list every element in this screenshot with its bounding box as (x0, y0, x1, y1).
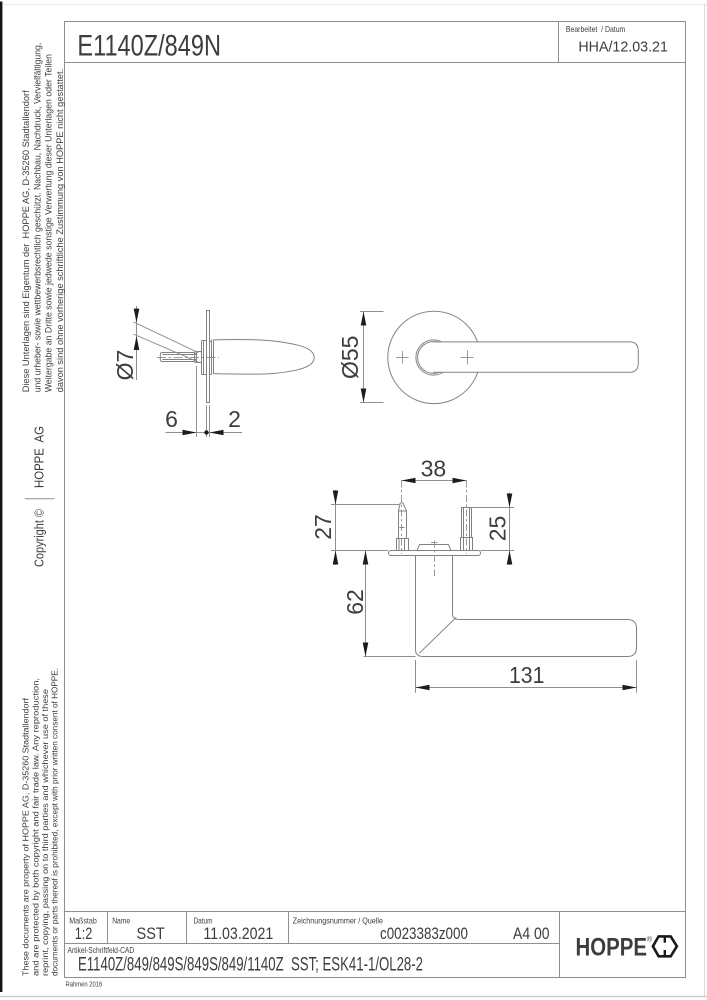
svg-text:Artikel-Schriftfeld-CAD: Artikel-Schriftfeld-CAD (68, 945, 135, 955)
svg-text:2: 2 (228, 406, 241, 432)
svg-text:HHA/12.03.21: HHA/12.03.21 (578, 39, 668, 56)
svg-text:und urheber- sowie wettbewerbs: und urheber- sowie wettbewerbsrechtlich … (33, 43, 43, 393)
svg-text:38: 38 (421, 456, 447, 482)
svg-text:HOPPE AG: HOPPE AG (32, 426, 47, 488)
svg-text:Bearbeitet / Datum: Bearbeitet / Datum (566, 24, 625, 34)
svg-text:Diese Unterlagen sind Eigentum: Diese Unterlagen sind Eigentum der HOPPE… (21, 90, 31, 393)
svg-text:A4 00: A4 00 (513, 925, 550, 943)
svg-text:Ø7: Ø7 (112, 350, 138, 381)
svg-text:E1140Z/849/849S/849S/849/1140Z: E1140Z/849/849S/849S/849/1140Z SST; ESK4… (78, 955, 423, 976)
svg-text:Ø55: Ø55 (337, 336, 363, 379)
svg-text:documents or parts thereof is: documents or parts thereof is prohibited… (51, 668, 60, 976)
svg-text:131: 131 (509, 662, 545, 688)
svg-text:Rahmen 2016: Rahmen 2016 (66, 980, 103, 989)
svg-text:Copyright ©: Copyright © (32, 509, 47, 567)
svg-text:HOPPE: HOPPE (576, 934, 648, 961)
svg-text:27: 27 (310, 514, 336, 540)
svg-text:Weitergabe an Dritte sowie jed: Weitergabe an Dritte sowie jedwede sonst… (43, 54, 53, 392)
svg-text:davon sind ohne vorherige schr: davon sind ohne vorherige schriftliche Z… (55, 69, 65, 393)
svg-text:6: 6 (165, 406, 178, 432)
svg-text:c0023383z000: c0023383z000 (380, 925, 468, 943)
svg-text:Zeichnungsnummer / Quelle: Zeichnungsnummer / Quelle (293, 916, 384, 926)
svg-text:1:2: 1:2 (75, 925, 93, 943)
svg-text:E1140Z/849N: E1140Z/849N (77, 30, 221, 63)
svg-text:25: 25 (484, 516, 510, 542)
svg-text:reprint, copying, passing on t: reprint, copying, passing on to third pa… (41, 688, 50, 976)
svg-text:62: 62 (342, 589, 368, 615)
svg-text:®: ® (647, 935, 653, 944)
svg-text:These documents are property o: These documents are property of HOPPE AG… (22, 697, 31, 976)
svg-text:SST: SST (137, 925, 165, 943)
svg-text:and are protected by both copy: and are protected by both copyright and … (32, 678, 41, 976)
svg-text:Name: Name (112, 916, 130, 926)
svg-text:11.03.2021: 11.03.2021 (203, 925, 273, 943)
